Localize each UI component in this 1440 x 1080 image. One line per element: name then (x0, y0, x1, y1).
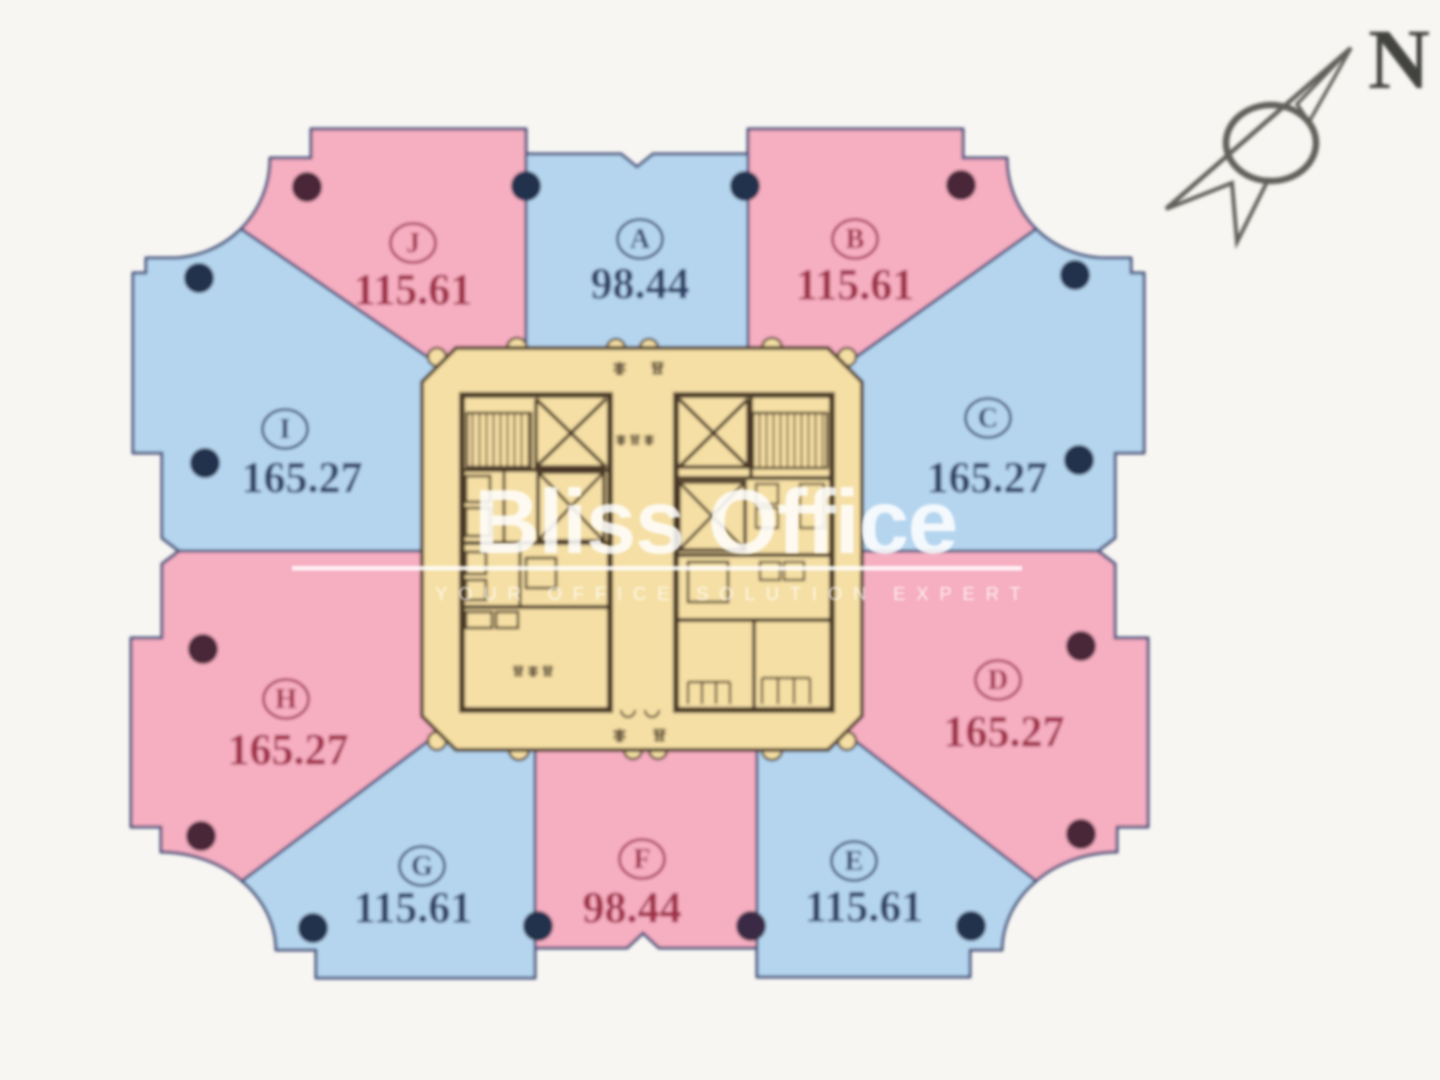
svg-text:G: G (411, 851, 433, 882)
svg-text:A: A (630, 224, 651, 255)
svg-text:115.61: 115.61 (796, 260, 915, 309)
svg-text:I: I (280, 414, 291, 445)
svg-text:H: H (275, 684, 297, 715)
svg-text:YOUR OFFICE SOLUTION EXPERT: YOUR OFFICE SOLUTION EXPERT (435, 583, 1032, 604)
svg-text:115.61: 115.61 (354, 883, 473, 932)
svg-text:F: F (633, 844, 650, 875)
svg-text:D: D (988, 665, 1008, 696)
svg-text:J: J (406, 228, 420, 259)
svg-text:165.27: 165.27 (228, 725, 349, 774)
svg-text:165.27: 165.27 (944, 707, 1065, 756)
svg-text:Bliss Office: Bliss Office (474, 472, 957, 573)
svg-text:C: C (978, 403, 998, 434)
svg-text:165.27: 165.27 (242, 453, 363, 502)
svg-text:B: B (846, 224, 865, 255)
svg-text:115.61: 115.61 (354, 265, 473, 314)
svg-text:E: E (845, 846, 864, 877)
svg-text:98.44: 98.44 (591, 259, 690, 308)
svg-text:98.44: 98.44 (583, 883, 682, 932)
svg-text:N: N (1368, 11, 1430, 107)
svg-text:115.61: 115.61 (805, 882, 924, 931)
